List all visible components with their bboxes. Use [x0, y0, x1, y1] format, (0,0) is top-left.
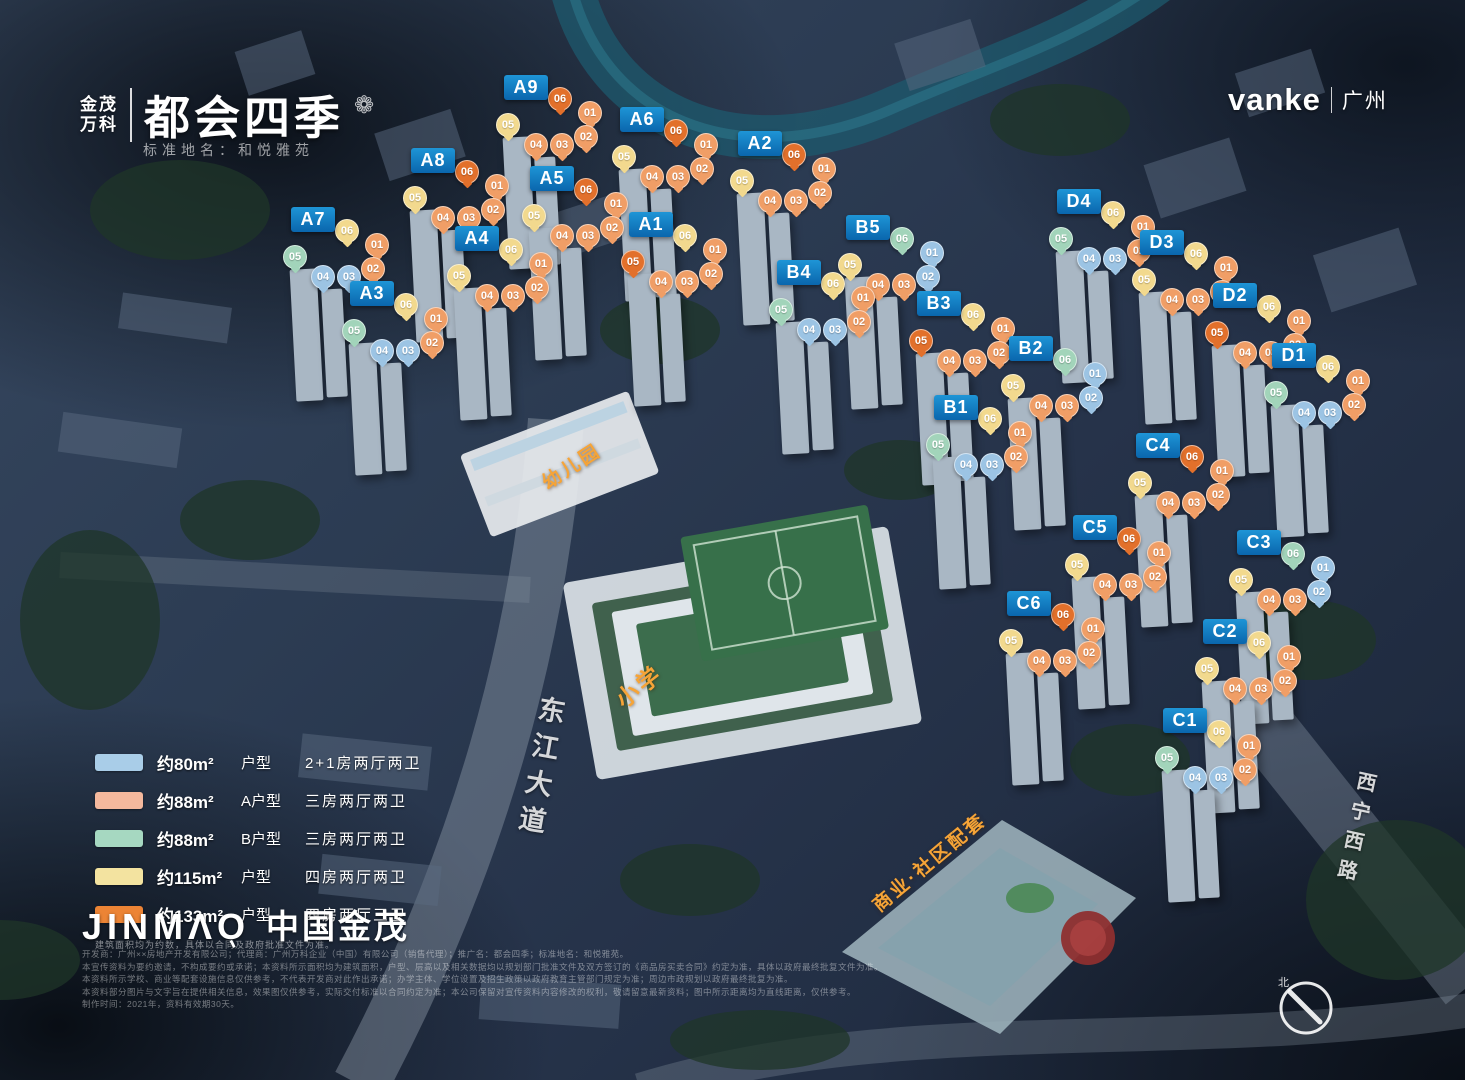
unit-badge-D4-04: 04 — [1077, 247, 1101, 271]
developer-vanke: 万科 — [80, 115, 118, 135]
building-label-B2: B2 — [1009, 336, 1053, 361]
unit-badge-B1-01: 01 — [1008, 421, 1032, 445]
unit-badge-A3-02: 02 — [420, 331, 444, 355]
unit-badge-A5-05: 05 — [522, 204, 546, 228]
disclaimer-line-4: 本资料部分图片与文字旨在提供相关信息，效果图仅供参考，实际交付标准以合同约定为准… — [82, 986, 1412, 999]
building-label-D4: D4 — [1057, 189, 1101, 214]
unit-badge-A4-01: 01 — [529, 252, 553, 276]
unit-badge-D3-01: 01 — [1214, 256, 1238, 280]
unit-badge-A1-02: 02 — [699, 262, 723, 286]
unit-badge-C2-06: 06 — [1247, 631, 1271, 655]
compass-icon — [1268, 968, 1338, 1042]
unit-badge-D4-06: 06 — [1101, 201, 1125, 225]
unit-badge-D1-06: 06 — [1316, 355, 1340, 379]
unit-badge-B3-05: 05 — [909, 329, 933, 353]
unit-badge-A7-06: 06 — [335, 219, 359, 243]
unit-badge-B2-05: 05 — [1001, 374, 1025, 398]
building-label-C6: C6 — [1007, 591, 1051, 616]
unit-badge-D3-03: 03 — [1186, 288, 1210, 312]
building-label-A6: A6 — [620, 107, 664, 132]
unit-badge-B4-02: 02 — [847, 310, 871, 334]
vanke-wordmark: vanke — [1228, 82, 1321, 118]
unit-badge-A2-06: 06 — [782, 143, 806, 167]
unit-badge-D3-04: 04 — [1160, 288, 1184, 312]
developer-jinmao: 金茂 — [80, 95, 118, 115]
unit-badge-B5-02: 02 — [916, 265, 940, 289]
unit-badge-C3-02: 02 — [1307, 580, 1331, 604]
legend-type: 户型 — [241, 866, 305, 887]
unit-badge-C1-03: 03 — [1209, 766, 1233, 790]
unit-badge-D2-04: 04 — [1233, 341, 1257, 365]
building-label-D1: D1 — [1272, 343, 1316, 368]
unit-badge-D2-06: 06 — [1257, 295, 1281, 319]
legend-swatch-115 — [95, 868, 143, 885]
unit-badge-B1-02: 02 — [1004, 445, 1028, 469]
unit-badge-B5-01: 01 — [920, 241, 944, 265]
jinmao-logo: JINMΛO、 中国金茂 — [82, 900, 410, 948]
unit-badge-A5-02: 02 — [600, 216, 624, 240]
unit-badge-C3-06: 06 — [1281, 542, 1305, 566]
unit-badge-B1-06: 06 — [978, 407, 1002, 431]
unit-badge-A8-02: 02 — [481, 198, 505, 222]
unit-badge-C4-03: 03 — [1182, 491, 1206, 515]
unit-badge-D1-05: 05 — [1264, 381, 1288, 405]
unit-badge-B3-03: 03 — [963, 349, 987, 373]
unit-badge-B2-01: 01 — [1083, 362, 1107, 386]
standard-name-subtitle: 标准地名：和悦雅苑 — [143, 140, 314, 160]
unit-badge-C4-02: 02 — [1206, 483, 1230, 507]
unit-badge-A1-04: 04 — [649, 270, 673, 294]
unit-badge-D4-05: 05 — [1049, 227, 1073, 251]
unit-badge-B1-03: 03 — [980, 453, 1004, 477]
unit-badge-A4-03: 03 — [501, 284, 525, 308]
unit-badge-C6-01: 01 — [1081, 617, 1105, 641]
unit-badge-A7-05: 05 — [283, 245, 307, 269]
building-label-A9: A9 — [504, 75, 548, 100]
unit-badge-A6-03: 03 — [666, 165, 690, 189]
unit-badge-B2-03: 03 — [1055, 394, 1079, 418]
legend-area: 约80m² — [157, 750, 241, 775]
legend-row-88A: 约88m²A户型三房两厅两卫 — [95, 786, 421, 814]
unit-badge-B4-06: 06 — [821, 272, 845, 296]
legend-layout: 四房两厅两卫 — [305, 866, 407, 887]
vanke-region: 广州 — [1342, 85, 1388, 115]
unit-badge-C2-02: 02 — [1273, 669, 1297, 693]
unit-badge-C6-06: 06 — [1051, 603, 1075, 627]
project-logo: 金茂 万科 都会四季 ❁ — [80, 82, 374, 148]
legend-layout: 2+1房两厅两卫 — [305, 752, 421, 773]
unit-badge-A6-05: 05 — [612, 145, 636, 169]
unit-badge-C3-04: 04 — [1257, 588, 1281, 612]
legend-layout: 三房两厅两卫 — [305, 828, 407, 849]
unit-badge-A6-01: 01 — [694, 133, 718, 157]
jinmao-wordmark-cn: 中国金茂 — [266, 900, 410, 948]
unit-badge-C5-04: 04 — [1093, 573, 1117, 597]
unit-badge-A6-04: 04 — [640, 165, 664, 189]
building-label-B5: B5 — [846, 215, 890, 240]
unit-badge-A5-03: 03 — [576, 224, 600, 248]
unit-badge-C3-01: 01 — [1311, 556, 1335, 580]
building-label-B1: B1 — [934, 395, 978, 420]
unit-badge-B3-06: 06 — [961, 303, 985, 327]
unit-badge-C6-04: 04 — [1027, 649, 1051, 673]
building-label-B4: B4 — [777, 260, 821, 285]
building-label-A2: A2 — [738, 131, 782, 156]
unit-badge-C5-02: 02 — [1143, 565, 1167, 589]
unit-badge-C1-05: 05 — [1155, 746, 1179, 770]
unit-badge-A7-02: 02 — [361, 257, 385, 281]
unit-badge-C4-04: 04 — [1156, 491, 1180, 515]
unit-badge-C3-05: 05 — [1229, 568, 1253, 592]
unit-badge-C5-03: 03 — [1119, 573, 1143, 597]
unit-badge-A8-01: 01 — [485, 174, 509, 198]
legend-swatch-88B — [95, 830, 143, 847]
unit-badge-C1-01: 01 — [1237, 734, 1261, 758]
unit-badge-C2-01: 01 — [1277, 645, 1301, 669]
poster-canvas: { "header": { "brand_left_line1": "金茂", … — [0, 0, 1465, 1080]
unit-badge-C5-06: 06 — [1117, 527, 1141, 551]
legend-layout: 三房两厅两卫 — [305, 790, 407, 811]
vanke-divider — [1331, 87, 1332, 113]
unit-badge-B1-04: 04 — [954, 453, 978, 477]
legend-type: A户型 — [241, 790, 305, 811]
building-label-D3: D3 — [1140, 230, 1184, 255]
unit-badge-B2-04: 04 — [1029, 394, 1053, 418]
unit-badge-A1-03: 03 — [675, 270, 699, 294]
unit-badge-D1-04: 04 — [1292, 401, 1316, 425]
unit-badge-A7-04: 04 — [311, 265, 335, 289]
legend-swatch-80 — [95, 754, 143, 771]
unit-badge-D1-03: 03 — [1318, 401, 1342, 425]
unit-badge-A6-06: 06 — [664, 119, 688, 143]
unit-badge-C6-02: 02 — [1077, 641, 1101, 665]
flower-emblem-icon: ❁ — [354, 91, 374, 120]
unit-badge-A9-02: 02 — [574, 125, 598, 149]
logo-divider — [130, 88, 132, 142]
unit-badge-C2-05: 05 — [1195, 657, 1219, 681]
legend-type: 户型 — [241, 752, 305, 773]
unit-badge-C2-03: 03 — [1249, 677, 1273, 701]
unit-badge-A4-06: 06 — [499, 238, 523, 262]
unit-badge-C1-04: 04 — [1183, 766, 1207, 790]
unit-badge-D3-06: 06 — [1184, 242, 1208, 266]
unit-badge-C4-06: 06 — [1180, 445, 1204, 469]
unit-badge-B5-05: 05 — [838, 253, 862, 277]
building-label-C4: C4 — [1136, 433, 1180, 458]
building-label-A7: A7 — [291, 207, 335, 232]
unit-badge-B4-03: 03 — [823, 318, 847, 342]
disclaimer-line-5: 制作时间：2021年，资料有效期30天。 — [82, 998, 1412, 1011]
unit-badge-A7-01: 01 — [365, 233, 389, 257]
legal-disclaimer: 开发商：广州××房地产开发有限公司；代理商：广州万科企业（中国）有限公司（销售代… — [82, 948, 1412, 1011]
unit-badge-B4-04: 04 — [797, 318, 821, 342]
unit-badge-A9-05: 05 — [496, 113, 520, 137]
unit-badge-B4-05: 05 — [769, 298, 793, 322]
legend-swatch-88A — [95, 792, 143, 809]
unit-badge-A9-04: 04 — [524, 133, 548, 157]
unit-badge-B4-01: 01 — [851, 286, 875, 310]
vanke-logo: vanke 广州 — [1228, 82, 1388, 118]
unit-badge-A6-02: 02 — [690, 157, 714, 181]
jinmao-wordmark-en: JINMΛO、 — [82, 906, 250, 948]
legend-row-80: 约80m²户型2+1房两厅两卫 — [95, 748, 421, 776]
unit-badge-A2-03: 03 — [784, 189, 808, 213]
unit-badge-A1-06: 06 — [673, 224, 697, 248]
building-label-A1: A1 — [629, 212, 673, 237]
unit-badge-A3-05: 05 — [342, 319, 366, 343]
unit-badge-A8-05: 05 — [403, 186, 427, 210]
building-label-C2: C2 — [1203, 619, 1247, 644]
legend-row-88B: 约88m²B户型三房两厅两卫 — [95, 824, 421, 852]
compass: 北 — [1268, 968, 1338, 1042]
building-label-C1: C1 — [1163, 708, 1207, 733]
unit-badge-D1-02: 02 — [1342, 393, 1366, 417]
unit-badge-C5-05: 05 — [1065, 553, 1089, 577]
unit-badge-C6-03: 03 — [1053, 649, 1077, 673]
building-label-A4: A4 — [455, 226, 499, 251]
unit-badge-A9-03: 03 — [550, 133, 574, 157]
unit-badge-C2-04: 04 — [1223, 677, 1247, 701]
unit-badge-A8-06: 06 — [455, 160, 479, 184]
disclaimer-line-1: 开发商：广州××房地产开发有限公司；代理商：广州万科企业（中国）有限公司（销售代… — [82, 948, 1412, 961]
legend-area: 约88m² — [157, 788, 241, 813]
unit-badge-A3-06: 06 — [394, 293, 418, 317]
unit-badge-A3-03: 03 — [396, 339, 420, 363]
legend-area: 约115m² — [157, 864, 241, 889]
unit-badge-C3-03: 03 — [1283, 588, 1307, 612]
unit-badge-B3-02: 02 — [987, 341, 1011, 365]
unit-badge-C1-06: 06 — [1207, 720, 1231, 744]
unit-badge-A2-02: 02 — [808, 181, 832, 205]
unit-badge-A1-01: 01 — [703, 238, 727, 262]
unit-badge-B1-05: 05 — [926, 433, 950, 457]
unit-badge-A1-05: 05 — [621, 250, 645, 274]
unit-badge-C5-01: 01 — [1147, 541, 1171, 565]
building-label-D2: D2 — [1213, 283, 1257, 308]
disclaimer-line-2: 本宣传资料为要约邀请，不构成要约或承诺；本资料所示面积均为建筑面积，户型、层高以… — [82, 961, 1412, 974]
unit-badge-C1-02: 02 — [1233, 758, 1257, 782]
unit-badge-A9-06: 06 — [548, 87, 572, 111]
building-label-A8: A8 — [411, 148, 455, 173]
unit-badge-A5-01: 01 — [604, 192, 628, 216]
unit-badge-A3-04: 04 — [370, 339, 394, 363]
unit-badge-A5-04: 04 — [550, 224, 574, 248]
unit-badge-A2-05: 05 — [730, 169, 754, 193]
unit-badge-C4-01: 01 — [1210, 459, 1234, 483]
project-title: 都会四季 — [144, 82, 344, 148]
unit-badge-D3-05: 05 — [1132, 268, 1156, 292]
unit-badge-D4-03: 03 — [1103, 247, 1127, 271]
building-label-A3: A3 — [350, 281, 394, 306]
building-label-A5: A5 — [530, 166, 574, 191]
unit-badge-A4-02: 02 — [525, 276, 549, 300]
building-label-C5: C5 — [1073, 515, 1117, 540]
legend-row-115: 约115m²户型四房两厅两卫 — [95, 862, 421, 890]
disclaimer-line-3: 本资料所示学校、商业等配套设施信息仅供参考，不代表开发商对此作出承诺；办学主体、… — [82, 973, 1412, 986]
unit-badge-B5-06: 06 — [890, 227, 914, 251]
legend-type: B户型 — [241, 828, 305, 849]
unit-badge-A2-04: 04 — [758, 189, 782, 213]
developer-names: 金茂 万科 — [80, 95, 118, 134]
unit-badge-B3-04: 04 — [937, 349, 961, 373]
unit-badge-D2-05: 05 — [1205, 321, 1229, 345]
unit-badge-C4-05: 05 — [1128, 471, 1152, 495]
unit-badge-A4-05: 05 — [447, 264, 471, 288]
unit-badge-A8-04: 04 — [431, 206, 455, 230]
unit-badge-A9-01: 01 — [578, 101, 602, 125]
legend-area: 约88m² — [157, 826, 241, 851]
unit-badge-A4-04: 04 — [475, 284, 499, 308]
unit-badge-D2-01: 01 — [1287, 309, 1311, 333]
unit-badge-D1-01: 01 — [1346, 369, 1370, 393]
unit-badge-B5-03: 03 — [892, 273, 916, 297]
building-label-B3: B3 — [917, 291, 961, 316]
unit-badge-A2-01: 01 — [812, 157, 836, 181]
unit-badge-C6-05: 05 — [999, 629, 1023, 653]
unit-badge-B2-02: 02 — [1079, 386, 1103, 410]
unit-badge-B2-06: 06 — [1053, 348, 1077, 372]
building-label-C3: C3 — [1237, 530, 1281, 555]
unit-badge-A3-01: 01 — [424, 307, 448, 331]
unit-badge-A5-06: 06 — [574, 178, 598, 202]
